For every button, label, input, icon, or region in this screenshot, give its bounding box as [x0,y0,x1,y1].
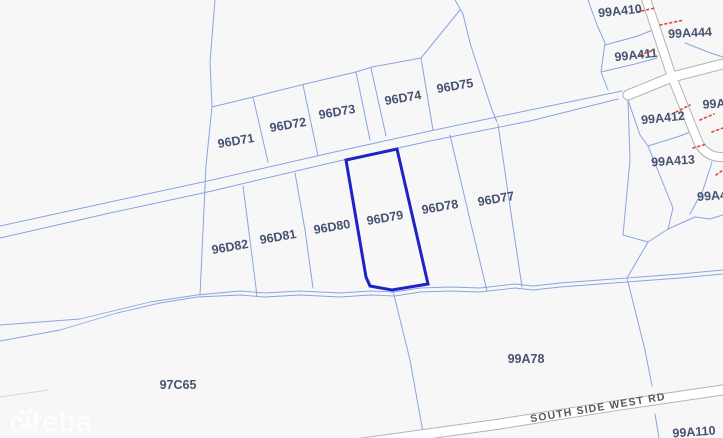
parcel-label-96d73: 96D73 [318,102,357,122]
parcel-label-99a444: 99A444 [668,25,713,41]
parcel-label-96d80: 96D80 [313,217,352,237]
faint-track-line [0,390,48,397]
parcel-label-99a110: 99A110 [672,424,716,438]
parcel-label-99a: 99A [702,96,723,112]
road-label-south-side-west-rd: SOUTH SIDE WEST RD [529,391,666,425]
parcel-label-96d75: 96D75 [436,76,475,96]
parcel-label-96d74: 96D74 [384,88,423,108]
parcel-label-99a411: 99A411 [614,46,658,64]
parcel-label-99a410: 99A410 [597,2,642,21]
parcel-label-99a4: 99A4 [697,188,723,204]
parcel-label-96d78: 96D78 [421,197,460,217]
parcel-labels: 96D7196D7296D7396D7496D7596D8296D8196D80… [160,2,723,438]
parcel-label-96d72: 96D72 [269,115,308,135]
parcel-label-97c65: 97C65 [160,378,197,392]
parcel-label-99a412: 99A412 [640,109,685,128]
map-canvas[interactable]: 96D7196D7296D7396D7496D7596D8296D8196D80… [0,0,723,438]
parcel-label-99a413: 99A413 [651,152,696,169]
parcel-label-96d71: 96D71 [217,131,256,151]
stream [0,270,723,341]
parcel-label-96d82: 96D82 [211,237,250,257]
parcel-label-96d81: 96D81 [259,227,298,247]
parcel-label-99a78: 99A78 [508,352,545,366]
road-labels: SOUTH SIDE WEST RD [529,391,666,425]
parcel-map-svg: 96D7196D7296D7396D7496D7596D8296D8196D80… [0,0,723,438]
